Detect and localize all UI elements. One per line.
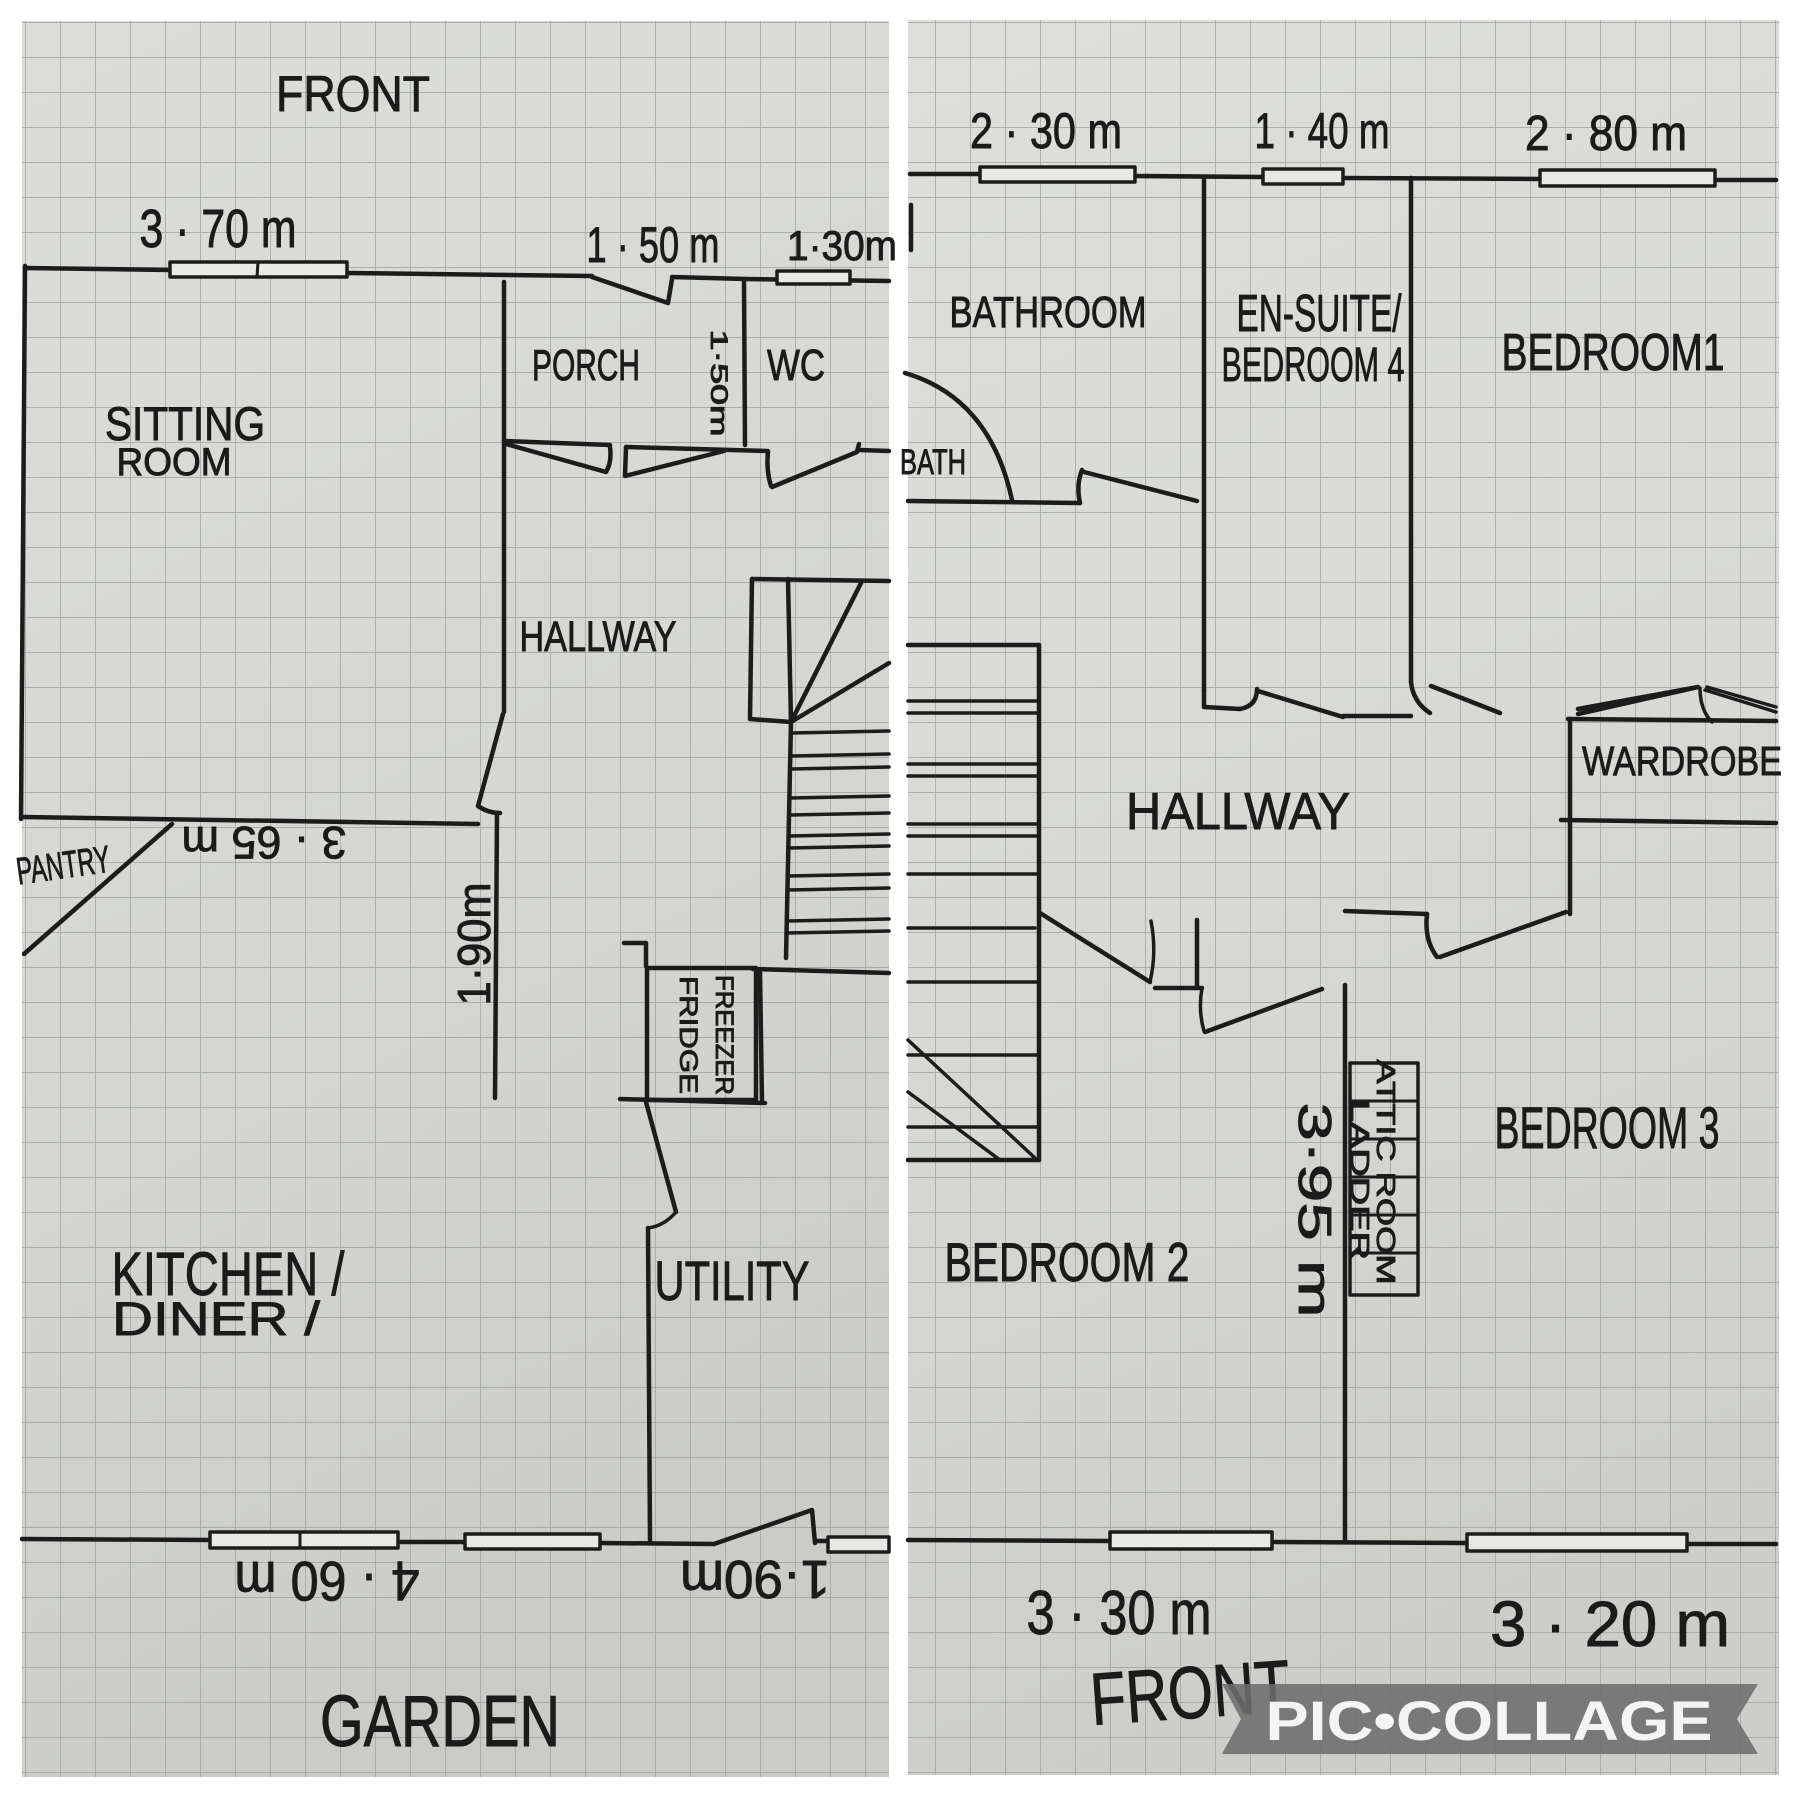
svg-text:PIC•COLLAGE: PIC•COLLAGE <box>1266 1689 1713 1752</box>
svg-text:BEDROOM1: BEDROOM1 <box>1502 324 1725 382</box>
svg-text:2 · 30 m: 2 · 30 m <box>970 103 1122 159</box>
svg-text:BATHROOM: BATHROOM <box>950 288 1147 337</box>
svg-text:1 · 50 m: 1 · 50 m <box>587 217 720 273</box>
svg-text:UTILITY: UTILITY <box>655 1249 810 1312</box>
svg-text:2 · 80 m: 2 · 80 m <box>1525 107 1687 161</box>
svg-text:WC: WC <box>767 341 825 390</box>
svg-text:1·90m: 1·90m <box>448 883 500 1006</box>
svg-text:EN-SUITE/: EN-SUITE/ <box>1237 285 1402 343</box>
svg-text:1 · 40 m: 1 · 40 m <box>1255 103 1390 159</box>
svg-text:BEDROOM 4: BEDROOM 4 <box>1222 339 1405 392</box>
svg-text:BEDROOM 3: BEDROOM 3 <box>1495 1096 1720 1161</box>
svg-text:1·50m: 1·50m <box>705 330 732 437</box>
svg-text:HALLWAY: HALLWAY <box>520 613 677 661</box>
svg-text:1·30m: 1·30m <box>787 222 897 269</box>
svg-text:FRONT: FRONT <box>276 66 430 122</box>
svg-text:WARDROBE: WARDROBE <box>1582 738 1782 784</box>
svg-text:HALLWAY: HALLWAY <box>1126 783 1350 841</box>
svg-text:FRIDGE: FRIDGE <box>674 976 702 1094</box>
svg-text:PORCH: PORCH <box>532 341 640 390</box>
svg-text:3·95 m: 3·95 m <box>1289 1103 1341 1318</box>
svg-text:GARDEN: GARDEN <box>320 1682 560 1762</box>
svg-text:3 · 20 m: 3 · 20 m <box>1490 1588 1730 1660</box>
svg-text:BATH: BATH <box>900 443 966 482</box>
svg-text:FREEZER: FREEZER <box>710 975 738 1095</box>
svg-text:3 · 30 m: 3 · 30 m <box>1027 1579 1212 1648</box>
svg-text:ROOM: ROOM <box>117 441 232 484</box>
svg-text:4 · 60 m: 4 · 60 m <box>235 1550 420 1613</box>
svg-text:LADDER: LADDER <box>1345 1100 1375 1260</box>
svg-text:3 · 70 m: 3 · 70 m <box>140 199 297 259</box>
svg-text:1·90m: 1·90m <box>680 1549 830 1609</box>
svg-text:BEDROOM 2: BEDROOM 2 <box>945 1231 1190 1293</box>
svg-text:3 · 65 m: 3 · 65 m <box>182 817 347 868</box>
svg-text:DINER /: DINER / <box>112 1292 321 1345</box>
